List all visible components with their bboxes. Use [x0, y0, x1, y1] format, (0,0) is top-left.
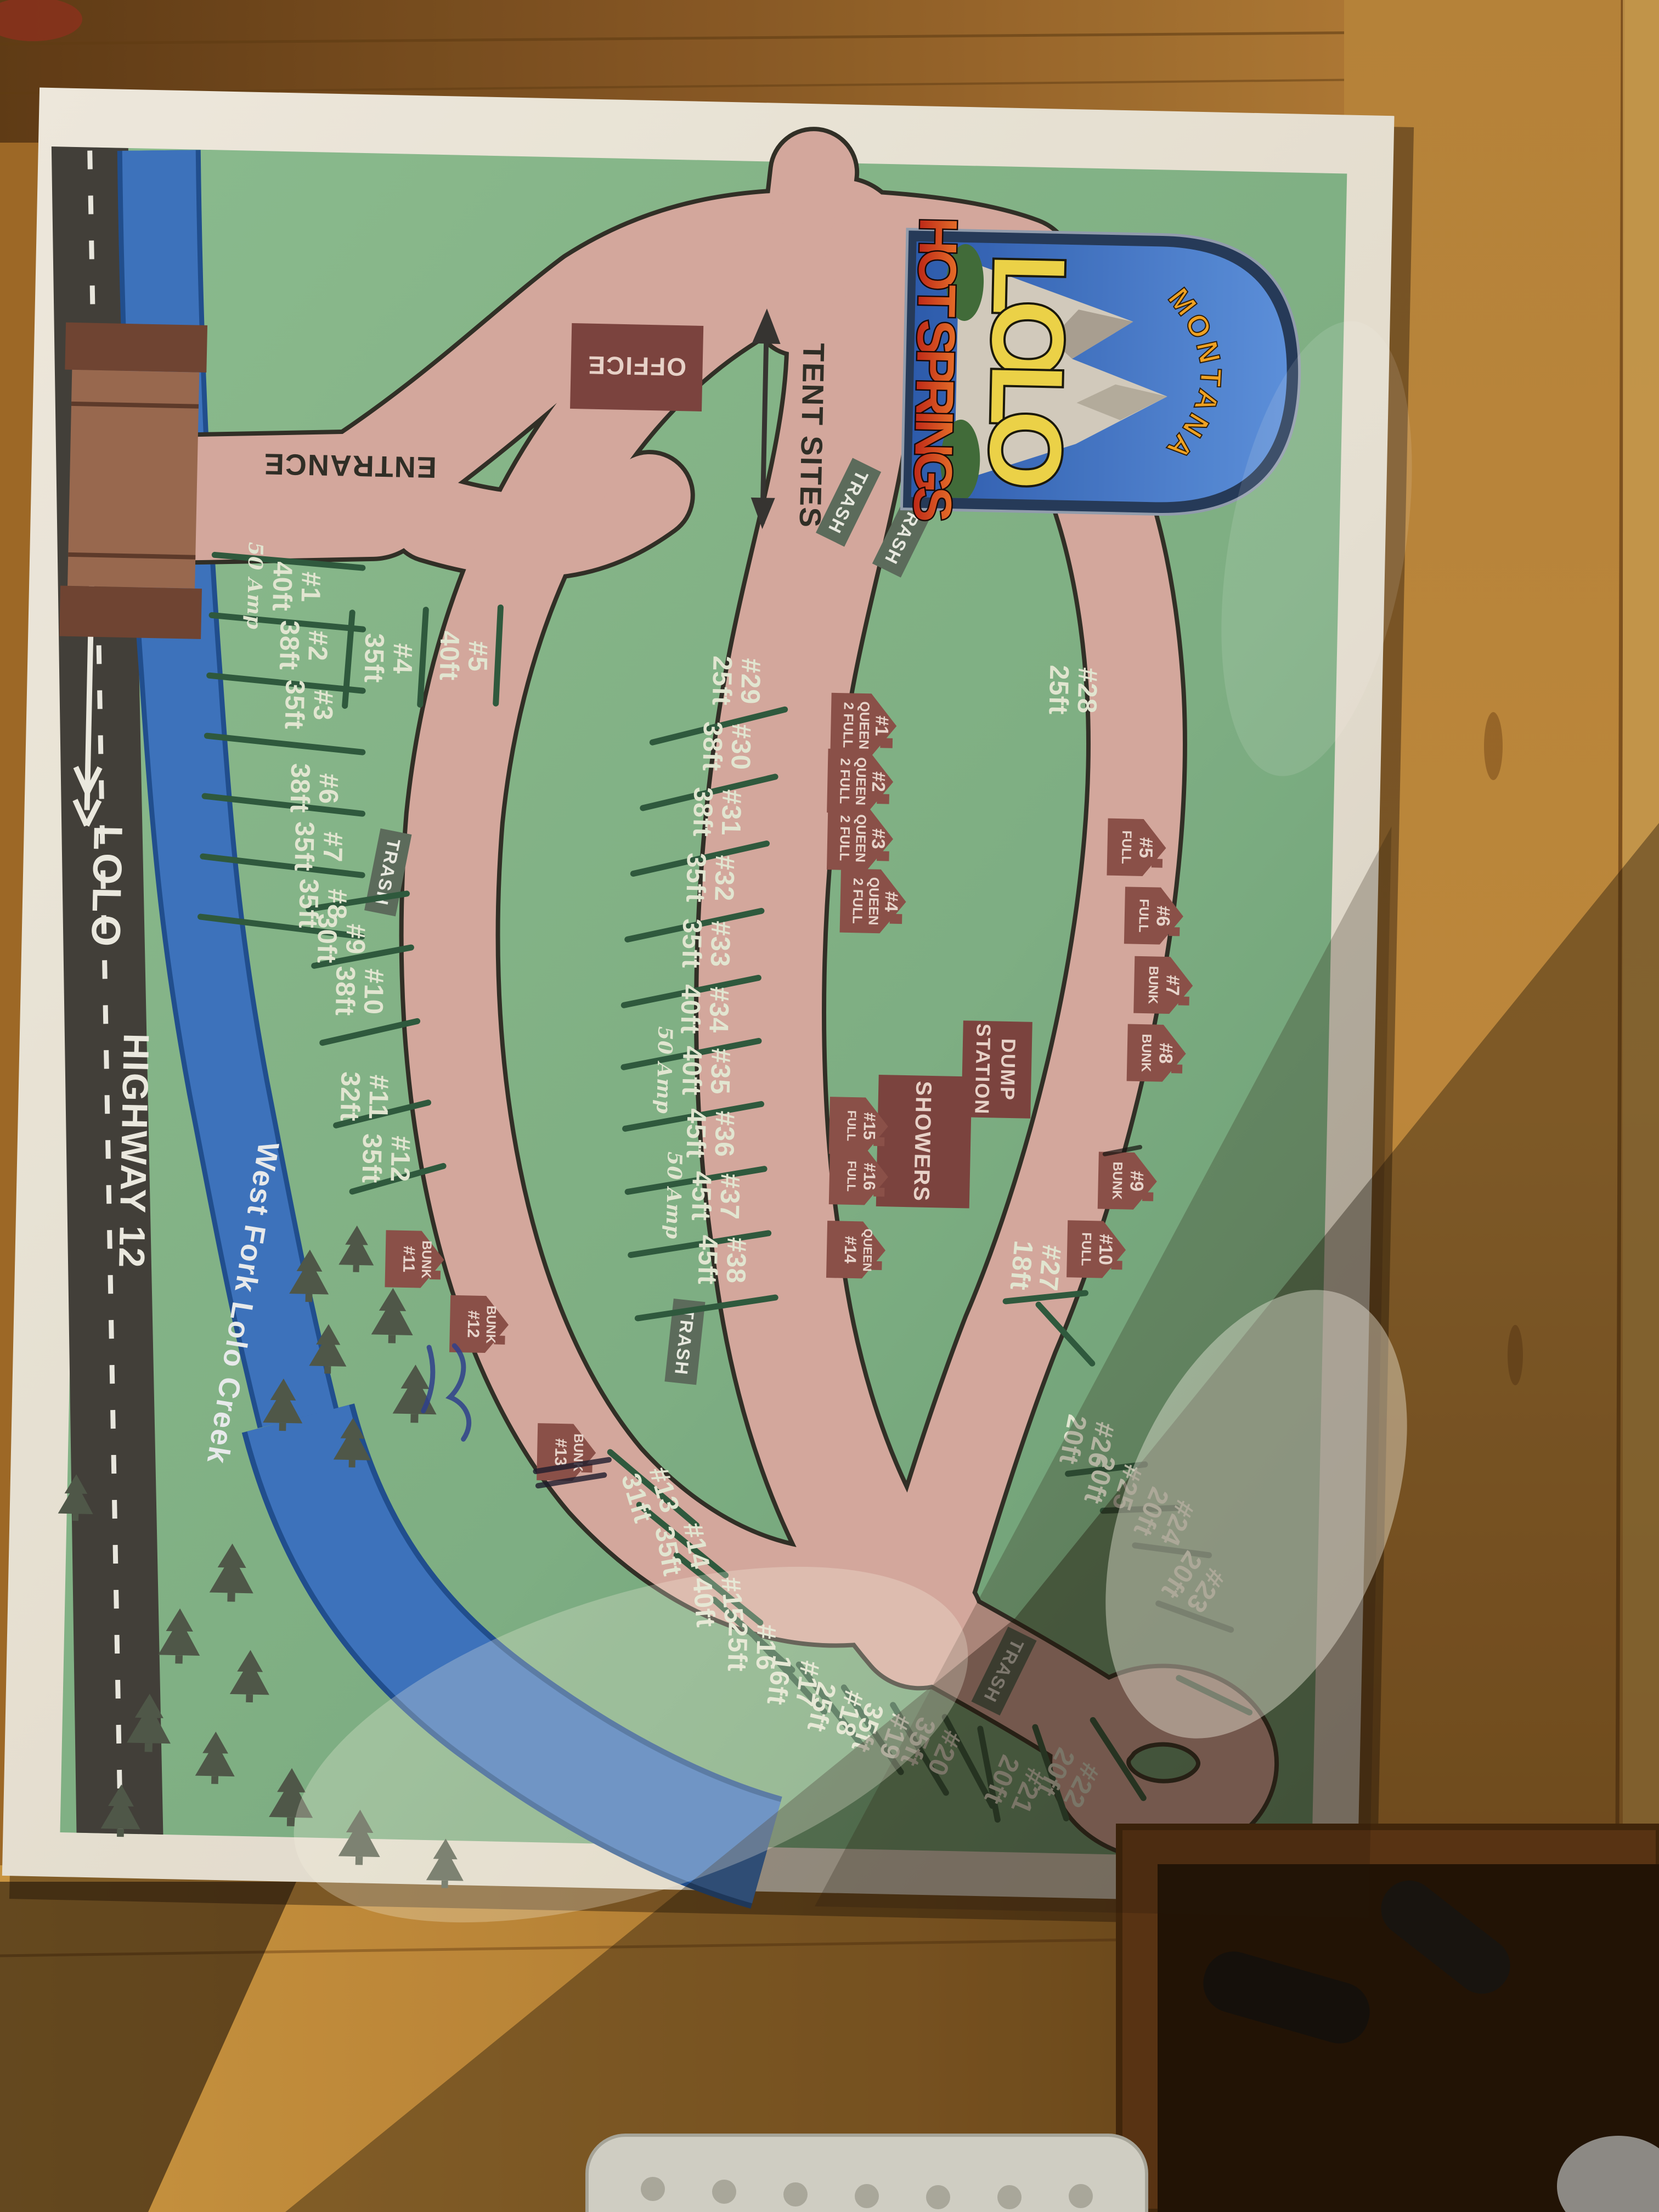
- warm-photo-tint: [0, 0, 1659, 2212]
- campground-map-photo: LOLO HIGHWAY 12 West Fork Lolo Creek: [0, 0, 1659, 2212]
